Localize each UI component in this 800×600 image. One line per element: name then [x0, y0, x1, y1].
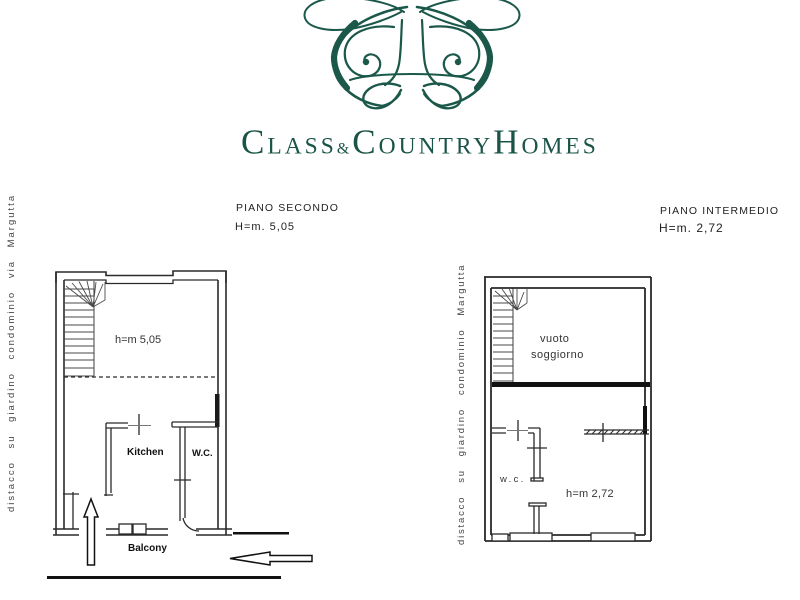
svg-text:PIANO SECONDO: PIANO SECONDO [236, 202, 339, 214]
svg-text:Balcony: Balcony [128, 543, 167, 554]
svg-text:PIANO INTERMEDIO: PIANO INTERMEDIO [660, 205, 779, 217]
svg-text:H=m. 5,05: H=m. 5,05 [235, 221, 295, 233]
svg-text:H=m. 2,72: H=m. 2,72 [659, 221, 724, 235]
svg-text:distacco su giardino condomini: distacco su giardino condominio Margutta [456, 264, 467, 545]
svg-text:Kitchen: Kitchen [127, 447, 164, 458]
svg-text:vuoto: vuoto [540, 333, 569, 345]
svg-text:h=m 2,72: h=m 2,72 [566, 488, 614, 500]
svg-text:soggiorno: soggiorno [531, 349, 584, 361]
svg-text:distacco su giardino condomini: distacco su giardino condominio via Marg… [6, 194, 17, 512]
svg-text:w.c.: w.c. [499, 474, 526, 485]
svg-text:h=m 5,05: h=m 5,05 [115, 334, 161, 346]
svg-text:W.C.: W.C. [192, 448, 213, 459]
